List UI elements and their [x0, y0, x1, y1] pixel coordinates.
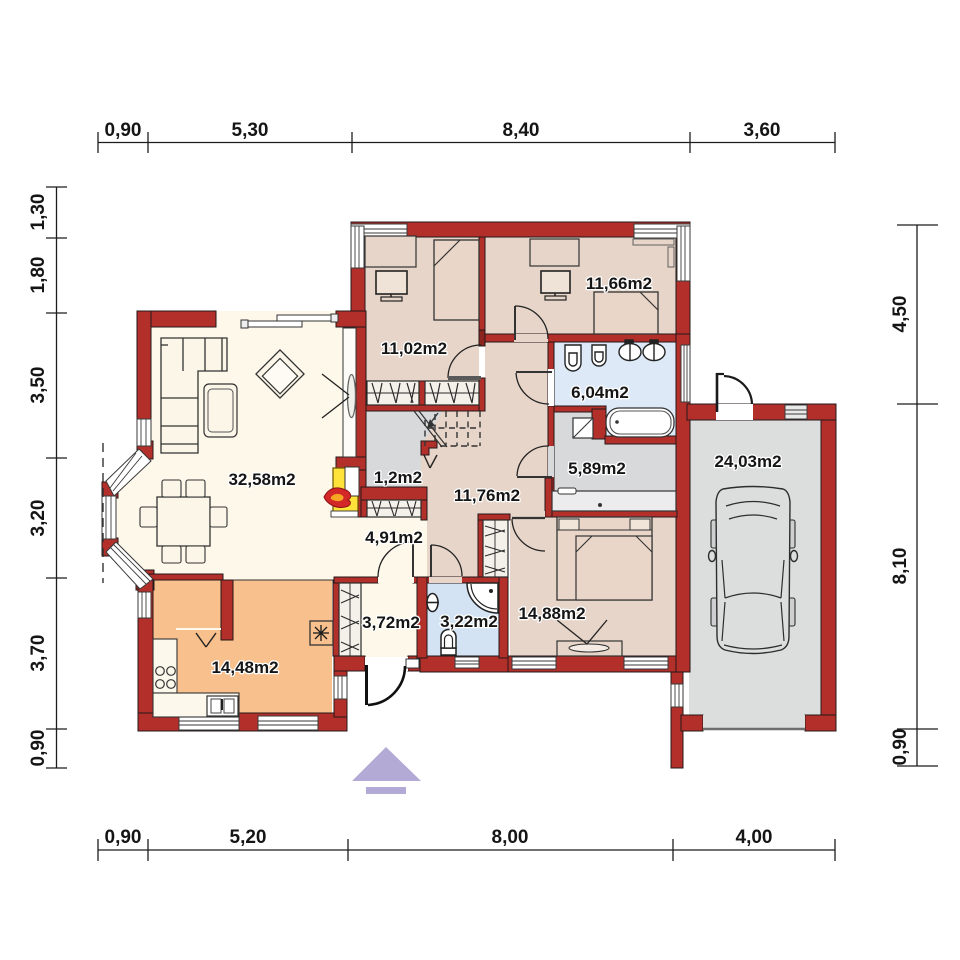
svg-text:3,72m2: 3,72m2	[362, 613, 420, 632]
svg-text:1,30: 1,30	[28, 194, 49, 231]
svg-text:3,20: 3,20	[28, 500, 49, 537]
svg-text:11,66m2: 11,66m2	[586, 274, 652, 293]
svg-text:32,58m2: 32,58m2	[228, 470, 295, 489]
svg-text:3,60: 3,60	[744, 120, 781, 141]
svg-text:0,90: 0,90	[28, 730, 49, 767]
svg-text:0,90: 0,90	[105, 827, 142, 848]
svg-text:1,2m2: 1,2m2	[374, 468, 422, 487]
svg-text:0,90: 0,90	[105, 120, 142, 141]
svg-text:6,04m2: 6,04m2	[571, 383, 629, 402]
svg-text:4,00: 4,00	[736, 827, 773, 848]
svg-text:14,48m2: 14,48m2	[211, 658, 278, 677]
svg-text:3,70: 3,70	[28, 635, 49, 672]
svg-text:3,50: 3,50	[28, 367, 49, 404]
svg-text:5,20: 5,20	[230, 827, 267, 848]
svg-text:3,22m2: 3,22m2	[440, 612, 498, 631]
svg-text:8,10: 8,10	[890, 548, 911, 585]
svg-text:11,76m2: 11,76m2	[454, 486, 520, 505]
svg-text:4,50: 4,50	[890, 296, 911, 333]
svg-text:8,00: 8,00	[492, 827, 529, 848]
svg-text:24,03m2: 24,03m2	[714, 452, 781, 471]
svg-text:8,40: 8,40	[503, 120, 540, 141]
svg-text:5,30: 5,30	[232, 120, 269, 141]
svg-text:4,91m2: 4,91m2	[365, 528, 423, 547]
svg-text:14,88m2: 14,88m2	[518, 604, 585, 623]
svg-text:1,80: 1,80	[28, 257, 49, 294]
svg-text:11,02m2: 11,02m2	[381, 339, 447, 358]
svg-text:0,90: 0,90	[890, 729, 911, 766]
svg-text:5,89m2: 5,89m2	[568, 459, 626, 478]
